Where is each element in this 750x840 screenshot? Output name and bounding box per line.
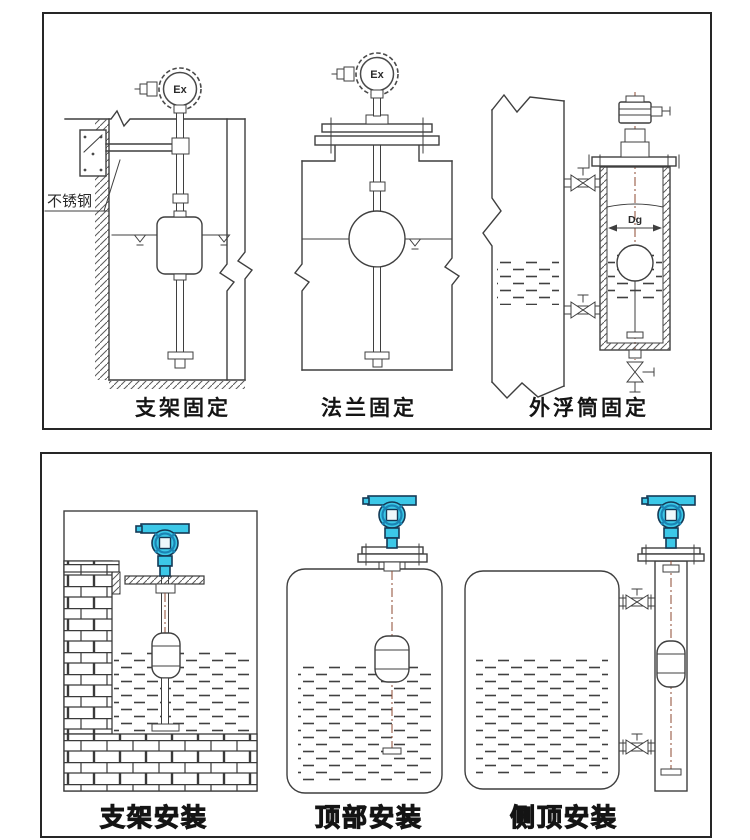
ex-transmitter-head — [135, 68, 201, 113]
drain-valve — [627, 350, 654, 392]
tank-wall-left — [483, 110, 501, 382]
ex-transmitter-head — [332, 53, 398, 98]
ceiling-line — [65, 111, 245, 126]
brick-wall — [64, 561, 112, 734]
transmitter-head — [642, 496, 695, 548]
brick-base — [64, 734, 257, 791]
float — [375, 636, 409, 682]
fixing-methods-drawing: Ex 不锈钢 — [44, 14, 710, 428]
figure-bracket-installation — [64, 511, 257, 791]
connection-valve-top — [619, 589, 655, 609]
liquid — [476, 656, 608, 778]
tank-break-top — [492, 95, 564, 112]
vessel-wall-right — [445, 161, 459, 370]
tank-liquid — [497, 257, 559, 305]
float — [657, 641, 685, 687]
stem-fitting — [663, 565, 679, 572]
isolation-valve-top — [564, 168, 600, 191]
figure-external-chamber-fixing: Dg — [483, 92, 679, 398]
installation-methods-drawing — [42, 454, 710, 836]
tank-wall-outer — [238, 119, 252, 380]
stem-collar — [370, 182, 385, 191]
stem-end-weight — [365, 352, 389, 359]
stem-lower — [374, 267, 381, 352]
stem-clamp — [172, 138, 189, 154]
material-label: 不锈钢 — [47, 193, 92, 210]
transmitter-head — [136, 524, 189, 576]
caption-flange-fixing: 法兰固定 — [321, 392, 417, 422]
float-sphere — [617, 245, 653, 281]
stem-end-weight — [627, 332, 643, 338]
vessel-shoulder-left — [302, 145, 335, 161]
vessel-shoulder-right — [419, 145, 452, 161]
installation-methods-panel: 支架安装 顶部安装 侧顶安装 — [40, 452, 712, 838]
stem-collar — [173, 194, 188, 203]
tank-wall-inner — [220, 119, 234, 380]
float-nub-bottom — [174, 274, 186, 280]
ex-label: Ex — [370, 69, 384, 81]
transmitter-head — [363, 496, 416, 548]
stem-fitting — [384, 562, 400, 571]
fixing-methods-panel: Ex 不锈钢 — [42, 12, 712, 430]
liquid — [114, 648, 250, 734]
brick-ledge — [64, 561, 119, 572]
stem-end-weight — [661, 769, 681, 775]
caption-top-installation: 顶部安装 — [315, 798, 423, 834]
float-nub-top — [174, 211, 186, 217]
shelf-mount — [112, 572, 120, 594]
vessel-wall-left — [295, 161, 309, 370]
ground-hatch — [109, 381, 245, 389]
head-neck — [374, 96, 381, 116]
ex-label: Ex — [173, 84, 187, 96]
figure-top-installation — [287, 496, 442, 793]
stem-end-weight — [152, 724, 179, 731]
float — [157, 217, 202, 274]
float — [152, 633, 180, 678]
stem-fitting — [156, 584, 175, 593]
stem-tip — [175, 359, 185, 368]
stem-end-weight — [168, 352, 193, 359]
figure-bracket-fixing: Ex 不锈钢 — [45, 68, 252, 389]
level-symbol — [410, 239, 421, 249]
figure-flange-fixing: Ex — [295, 53, 459, 370]
caption-bracket-fixing: 支架固定 — [135, 392, 231, 422]
stem-lower — [162, 678, 169, 724]
stem-tip — [373, 359, 382, 367]
caption-external-chamber-fixing: 外浮筒固定 — [529, 392, 649, 422]
isolation-valve-bottom — [564, 295, 600, 318]
stem-end-weight — [383, 748, 401, 754]
float-sphere — [349, 211, 405, 267]
figure-side-top-installation — [465, 496, 704, 791]
connection-valve-bottom — [619, 734, 655, 754]
caption-side-top-installation: 侧顶安装 — [510, 798, 618, 834]
caption-bracket-installation: 支架安装 — [100, 798, 208, 834]
transmitter-fittings — [619, 96, 670, 157]
diameter-label: Dg — [628, 214, 642, 226]
liquid — [298, 663, 431, 781]
support-shelf — [125, 576, 204, 584]
